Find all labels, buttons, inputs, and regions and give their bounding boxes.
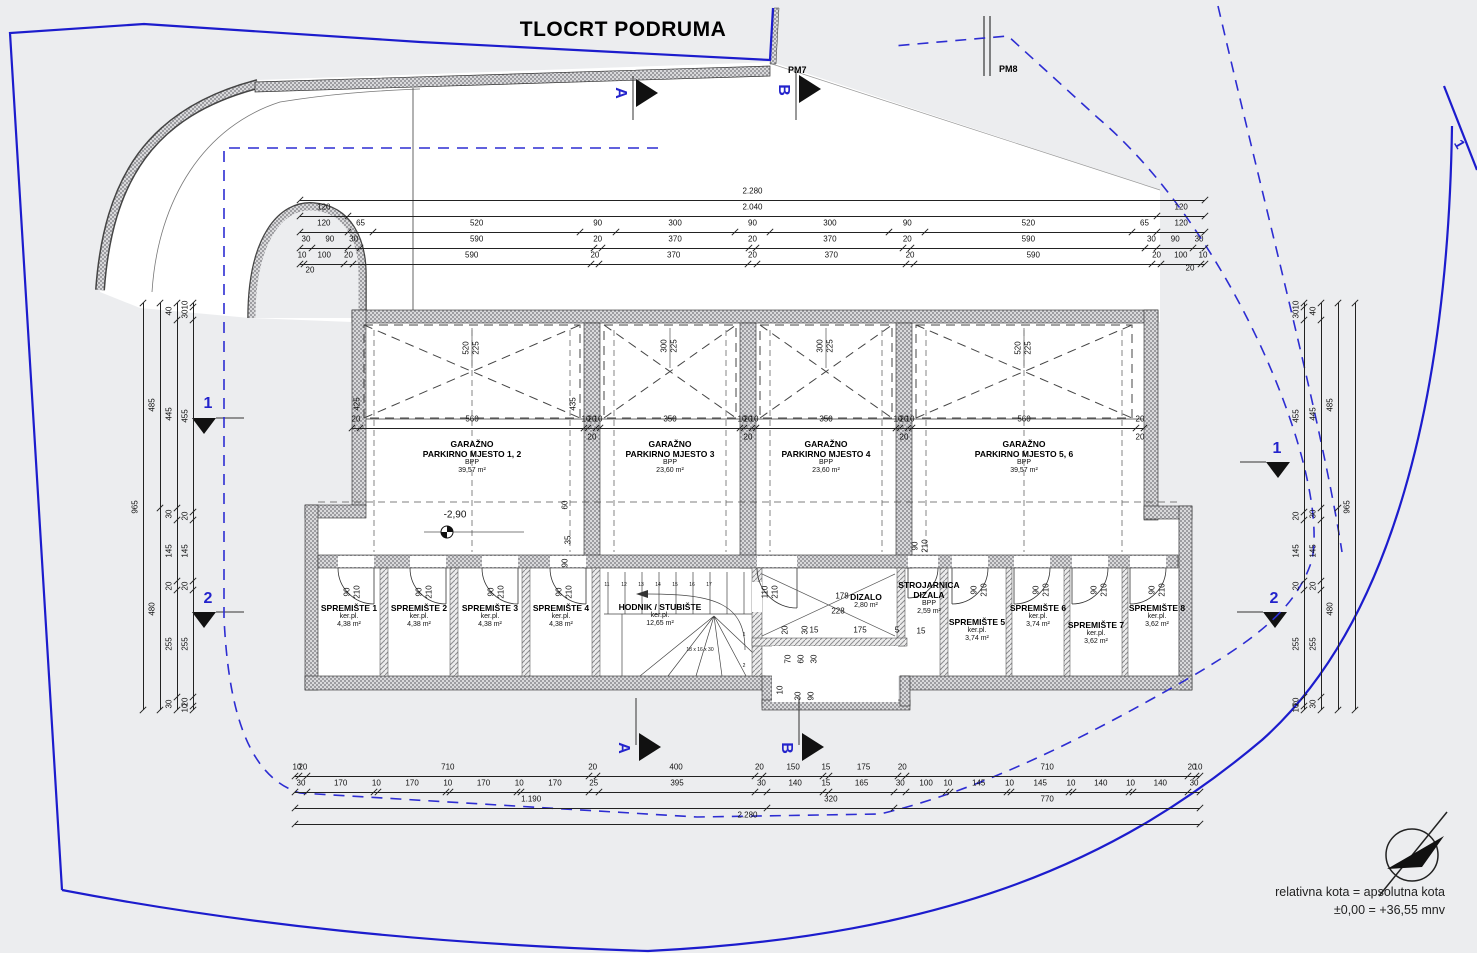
dim-value: 20 — [1136, 416, 1145, 425]
dim-value: 145 — [182, 544, 191, 557]
room-name: SPREMIŠTE 6 — [1010, 603, 1066, 613]
annotation: 20 — [744, 434, 753, 443]
dim-line-bottom-4 — [295, 824, 1200, 825]
dim-value: 485 — [1327, 399, 1336, 412]
room-label-hodnik-stubiste: HODNIK / STUBIŠTEker.pl.12,65 m² — [619, 602, 702, 628]
dim-value: 170 — [334, 780, 347, 789]
dim-value: 560 — [465, 416, 478, 425]
room-sub2: 3,74 m² — [1010, 621, 1066, 629]
dim-value: 90 — [903, 220, 912, 229]
dim-value: 20 — [298, 764, 307, 773]
dim-value: 15 — [821, 780, 830, 789]
dim-value: 40 — [166, 307, 175, 316]
annotation: 70 — [785, 655, 794, 664]
stair-step-number: 17 — [706, 583, 712, 589]
dim-value: 320 — [824, 796, 837, 805]
dim-value: 120 — [1174, 220, 1187, 229]
room-label-spremiste-8: SPREMIŠTE 8ker.pl.3,62 m² — [1129, 603, 1185, 629]
dim-value: 590 — [1027, 252, 1040, 261]
annotation: 90 — [556, 588, 565, 597]
annotation: 425 — [354, 397, 363, 410]
dim-value: 590 — [1022, 236, 1035, 245]
annotation: 90 — [912, 542, 921, 551]
annotation: 225 — [1025, 341, 1034, 354]
room-sub1: ker.pl. — [1129, 613, 1185, 621]
section-letter-B: B — [774, 84, 792, 96]
plot-corner-label: 1 — [1451, 137, 1469, 152]
dim-tick — [1201, 196, 1208, 203]
annotation: 90 — [488, 588, 497, 597]
dim-value: 480 — [1327, 602, 1336, 615]
dim-value: 100 — [318, 252, 331, 261]
room-name: SPREMIŠTE 1 — [321, 603, 377, 613]
dim-value: 255 — [182, 637, 191, 650]
dim-value: 400 — [669, 764, 682, 773]
dim-value: 370 — [667, 252, 680, 261]
dim-value: 10 — [1067, 780, 1076, 789]
dim-value: 10 — [943, 780, 952, 789]
annotation: 90 — [1033, 586, 1042, 595]
dim-value: 30 — [1147, 236, 1156, 245]
dim-value: 480 — [149, 602, 158, 615]
room-sub2: 3,74 m² — [949, 635, 1005, 643]
dim-value: 140 — [788, 780, 801, 789]
dim-value: 90 — [748, 220, 757, 229]
annotation: 60 — [562, 501, 571, 510]
dim-value: 30 — [757, 780, 766, 789]
stair-step-number: 11 — [604, 583, 609, 589]
annotation: 178 — [835, 593, 848, 602]
section-letter-2: 2 — [204, 590, 213, 608]
annotation: 175 — [853, 627, 866, 636]
room-sub1: 2,80 m² — [850, 602, 882, 610]
annotation: 5 — [895, 627, 899, 636]
dim-value: 20 — [344, 252, 353, 261]
dim-tick — [156, 706, 163, 713]
room-label-spremiste-7: SPREMIŠTE 7ker.pl.3,62 m² — [1068, 620, 1124, 646]
section-letter-B: B — [777, 742, 795, 754]
dim-value: 965 — [1344, 500, 1353, 513]
dim-value: 2.280 — [737, 812, 757, 821]
annotation: 90 — [1149, 586, 1158, 595]
stair-note: 18 x 16 x 30 — [686, 648, 713, 654]
annotation: 228 — [831, 608, 844, 617]
dim-value: 150 — [786, 764, 799, 773]
dim-value: 170 — [405, 780, 418, 789]
annotation: 225 — [827, 339, 836, 352]
section-letter-2: 2 — [1270, 590, 1279, 608]
room-name: STROJARNICA DIZALA — [898, 580, 959, 600]
dim-value: 485 — [149, 399, 158, 412]
stair-step-number: 1 — [743, 633, 746, 639]
dim-value: 30 — [1190, 780, 1199, 789]
annotation: 90 — [416, 588, 425, 597]
annotation: 15 — [810, 627, 819, 636]
dim-value: 350 — [819, 416, 832, 425]
stair-step-number: 14 — [655, 583, 661, 589]
room-sub2: 39,57 m² — [975, 467, 1073, 475]
dim-value: 770 — [1040, 796, 1053, 805]
annotation: 210 — [498, 585, 507, 598]
dim-tick — [1351, 706, 1358, 713]
annotation: 520 — [1015, 341, 1024, 354]
dim-value: 370 — [825, 252, 838, 261]
dim-value: 100 — [1174, 252, 1187, 261]
annotation: 210 — [426, 585, 435, 598]
dim-value: 445 — [1310, 407, 1319, 420]
dim-value: 30 — [896, 780, 905, 789]
annotation: 90 — [1091, 586, 1100, 595]
room-sub1: ker.pl. — [619, 612, 702, 620]
stair-step-number: 12 — [621, 583, 627, 589]
dim-value: 710 — [1040, 764, 1053, 773]
dim-value: 350 — [663, 416, 676, 425]
stair-step-number: 16 — [689, 583, 695, 589]
dim-value: 10 — [443, 780, 452, 789]
room-sub1: BPP — [423, 459, 521, 467]
annotation: 210 — [354, 585, 363, 598]
annotation: 210 — [1101, 583, 1110, 596]
dim-tick — [1196, 788, 1203, 795]
annotation: 90 — [808, 692, 817, 701]
room-label-garage-3: GARAŽNO PARKIRNO MJESTO 3BPP23,60 m² — [626, 439, 715, 475]
room-name: SPREMIŠTE 5 — [949, 617, 1005, 627]
dim-tick — [139, 706, 146, 713]
dim-value: 10 — [594, 416, 603, 425]
dim-value: 255 — [1310, 637, 1319, 650]
dim-line-right-4 — [1355, 303, 1356, 710]
annotation: 520 — [463, 341, 472, 354]
room-label-dizalo: DIZALO2,80 m² — [850, 592, 882, 610]
room-sub2: 23,60 m² — [782, 467, 871, 475]
dim-value: 10 — [1126, 780, 1135, 789]
room-sub1: ker.pl. — [462, 613, 518, 621]
dim-value: 90 — [325, 236, 334, 245]
dim-value: 175 — [857, 764, 870, 773]
dim-value: 10 — [298, 252, 307, 261]
dim-value: 120 — [317, 220, 330, 229]
annotation: 210 — [922, 539, 931, 552]
room-name: SPREMIŠTE 2 — [391, 603, 447, 613]
annotation: 300 — [817, 339, 826, 352]
room-sub1: BPP — [975, 459, 1073, 467]
dim-value: 370 — [823, 236, 836, 245]
dim-value: 300 — [668, 220, 681, 229]
dim-value: 590 — [470, 236, 483, 245]
dim-line-bottom-3 — [295, 808, 1200, 809]
dim-value: 710 — [441, 764, 454, 773]
dim-value: 20 — [588, 764, 597, 773]
dim-line-garage-front — [352, 428, 1144, 429]
elevation-note-line2: ±0,00 = +36,55 mnv — [1275, 902, 1445, 920]
dim-value: 965 — [132, 500, 141, 513]
room-sub1: ker.pl. — [1010, 613, 1066, 621]
dim-line-right-1 — [1304, 303, 1305, 710]
room-sub1: BPP — [626, 459, 715, 467]
dim-value: 170 — [548, 780, 561, 789]
dim-value: 20 — [1152, 252, 1161, 261]
room-name: HODNIK / STUBIŠTE — [619, 602, 702, 612]
dim-value: 370 — [668, 236, 681, 245]
dim-value: 590 — [465, 252, 478, 261]
room-sub1: ker.pl. — [391, 613, 447, 621]
dim-value: 10 — [750, 416, 759, 425]
annotation: 225 — [671, 339, 680, 352]
dim-value: 10 — [1194, 764, 1203, 773]
dim-value: 30 — [297, 780, 306, 789]
annotation: 210 — [1159, 583, 1168, 596]
dim-value: 255 — [166, 637, 175, 650]
dim-value: 2.280 — [742, 188, 762, 197]
annotation: 90 — [971, 586, 980, 595]
room-label-spremiste-3: SPREMIŠTE 3ker.pl.4,38 m² — [462, 603, 518, 629]
room-name: SPREMIŠTE 8 — [1129, 603, 1185, 613]
annotation: 435 — [570, 397, 579, 410]
room-sub2: 4,38 m² — [391, 621, 447, 629]
dim-value: 120 — [317, 204, 330, 213]
dim-value: 30 — [1195, 236, 1204, 245]
dim-line-top-3 — [300, 232, 1205, 233]
room-label-strojarnica-dizala: STROJARNICA DIZALABPP2,59 m² — [898, 580, 959, 616]
dim-value: 2.040 — [742, 204, 762, 213]
room-name: SPREMIŠTE 3 — [462, 603, 518, 613]
page-title: TLOCRT PODRUMA — [520, 18, 726, 42]
dim-value: 300 — [823, 220, 836, 229]
annotation: 210 — [1043, 583, 1052, 596]
room-label-spremiste-6: SPREMIŠTE 6ker.pl.3,74 m² — [1010, 603, 1066, 629]
section-letter-1: 1 — [1273, 440, 1282, 458]
dim-value: 20 — [755, 764, 764, 773]
room-label-spremiste-5: SPREMIŠTE 5ker.pl.3,74 m² — [949, 617, 1005, 643]
dim-value: 90 — [593, 220, 602, 229]
dim-value: 170 — [477, 780, 490, 789]
room-sub1: ker.pl. — [1068, 630, 1124, 638]
dim-value: 65 — [356, 220, 365, 229]
dim-value: 20 — [1293, 512, 1302, 521]
room-sub2: 3,62 m² — [1129, 621, 1185, 629]
annotation: 30 — [795, 692, 804, 701]
room-name: DIZALO — [850, 592, 882, 602]
dim-value: 145 — [1293, 544, 1302, 557]
annotation: 20 — [782, 626, 791, 635]
annotation: 210 — [981, 583, 990, 596]
dim-value: 145 — [1034, 780, 1047, 789]
dim-value: 10 — [906, 416, 915, 425]
annotation: 20 — [1186, 265, 1195, 274]
room-sub1: ker.pl. — [321, 613, 377, 621]
annotation: 20 — [900, 434, 909, 443]
pm7-label: PM7 — [788, 65, 807, 75]
dim-tick — [173, 706, 180, 713]
dim-value: 100 — [919, 780, 932, 789]
dim-value: 455 — [182, 409, 191, 422]
dim-value: 520 — [1022, 220, 1035, 229]
dim-value: 25 — [589, 780, 598, 789]
room-label-spremiste-4: SPREMIŠTE 4ker.pl.4,38 m² — [533, 603, 589, 629]
room-label-garage-1-2: GARAŽNO PARKIRNO MJESTO 1, 2BPP39,57 m² — [423, 439, 521, 475]
dim-tick — [1140, 424, 1147, 431]
dim-value: 120 — [1174, 204, 1187, 213]
dim-value: 90 — [1171, 236, 1180, 245]
annotation: -2,90 — [444, 509, 467, 520]
dim-tick — [1334, 706, 1341, 713]
annotation-layer: TLOCRT PODRUMA PM7 PM8 1 relativna kota … — [0, 0, 1477, 953]
room-label-spremiste-2: SPREMIŠTE 2ker.pl.4,38 m² — [391, 603, 447, 629]
dim-value: 140 — [1094, 780, 1107, 789]
room-sub2: 3,62 m² — [1068, 638, 1124, 646]
dim-value: 20 — [182, 512, 191, 521]
dim-tick — [1317, 706, 1324, 713]
dim-line-top-1 — [300, 200, 1205, 201]
annotation: 90 — [344, 588, 353, 597]
dim-line-top-5 — [300, 264, 1205, 265]
dim-value: 20 — [593, 236, 602, 245]
dim-value: 520 — [470, 220, 483, 229]
dim-line-bottom-2 — [295, 792, 1200, 793]
dim-tick — [1196, 804, 1203, 811]
dim-value: 20 — [748, 252, 757, 261]
room-sub2: 4,38 m² — [533, 621, 589, 629]
annotation: 225 — [473, 341, 482, 354]
dim-value: 145 — [166, 544, 175, 557]
dim-value: 40 — [1310, 307, 1319, 316]
room-name: GARAŽNO PARKIRNO MJESTO 4 — [782, 439, 871, 459]
stair-step-number: 2 — [743, 664, 746, 670]
annotation: 60 — [798, 655, 807, 664]
dim-value: 20 — [906, 252, 915, 261]
dim-line-bottom-1 — [295, 776, 1200, 777]
annotation: 210 — [566, 585, 575, 598]
room-sub1: BPP — [898, 600, 959, 608]
room-sub2: 4,38 m² — [462, 621, 518, 629]
section-letter-A: A — [614, 742, 632, 754]
room-sub2: 4,38 m² — [321, 621, 377, 629]
dim-value: 20 — [898, 764, 907, 773]
dim-value: 145 — [1310, 544, 1319, 557]
annotation: 10 — [777, 686, 786, 695]
room-sub1: ker.pl. — [949, 627, 1005, 635]
dim-value: 20 — [903, 236, 912, 245]
dim-value: 1.190 — [521, 796, 541, 805]
section-letter-1: 1 — [204, 395, 213, 413]
room-label-spremiste-1: SPREMIŠTE 1ker.pl.4,38 m² — [321, 603, 377, 629]
annotation: 30 — [811, 655, 820, 664]
room-sub1: BPP — [782, 459, 871, 467]
stair-step-number: 13 — [638, 583, 644, 589]
dim-value: 140 — [1154, 780, 1167, 789]
annotation: 20 — [1136, 434, 1145, 443]
dim-tick — [1196, 820, 1203, 827]
elevation-note-line1: relativna kota = apsolutna kota — [1275, 884, 1445, 902]
dim-value: 445 — [166, 407, 175, 420]
annotation: 300 — [661, 339, 670, 352]
dim-value: 165 — [855, 780, 868, 789]
room-sub2: 2,59 m² — [898, 608, 959, 616]
annotation: 20 — [306, 267, 315, 276]
annotation: 20 — [588, 434, 597, 443]
room-sub2: 23,60 m² — [626, 467, 715, 475]
dim-value: 30 — [302, 236, 311, 245]
annotation: 15 — [917, 628, 926, 637]
room-name: GARAŽNO PARKIRNO MJESTO 5, 6 — [975, 439, 1073, 459]
dim-value: 560 — [1017, 416, 1030, 425]
dim-value: 20 — [748, 236, 757, 245]
dim-tick — [1201, 212, 1208, 219]
dim-value: 20 — [352, 416, 361, 425]
annotation: 35 — [565, 536, 574, 545]
annotation: 90 — [562, 559, 571, 568]
annotation: 210 — [772, 585, 781, 598]
room-sub2: 12,65 m² — [619, 620, 702, 628]
dim-value: 30 — [1310, 699, 1319, 708]
dim-line-left-1 — [143, 303, 144, 710]
section-letter-A: A — [611, 87, 629, 99]
elevation-note: relativna kota = apsolutna kota ±0,00 = … — [1275, 884, 1445, 919]
room-label-garage-5-6: GARAŽNO PARKIRNO MJESTO 5, 6BPP39,57 m² — [975, 439, 1073, 475]
room-name: SPREMIŠTE 7 — [1068, 620, 1124, 630]
dim-value: 65 — [1140, 220, 1149, 229]
dim-value: 395 — [670, 780, 683, 789]
pm8-label: PM8 — [999, 64, 1018, 74]
dim-line-left-4 — [193, 303, 194, 710]
dim-value: 10 — [1199, 252, 1208, 261]
dim-value: 20 — [590, 252, 599, 261]
dim-value: 30 — [166, 699, 175, 708]
dim-value: 255 — [1293, 637, 1302, 650]
room-name: GARAŽNO PARKIRNO MJESTO 1, 2 — [423, 439, 521, 459]
room-name: SPREMIŠTE 4 — [533, 603, 589, 613]
room-name: GARAŽNO PARKIRNO MJESTO 3 — [626, 439, 715, 459]
room-label-garage-4: GARAŽNO PARKIRNO MJESTO 4BPP23,60 m² — [782, 439, 871, 475]
dim-line-top-2 — [300, 216, 1205, 217]
floor-plan-canvas: TLOCRT PODRUMA PM7 PM8 1 relativna kota … — [0, 0, 1477, 953]
room-sub2: 39,57 m² — [423, 467, 521, 475]
room-sub1: ker.pl. — [533, 613, 589, 621]
dim-value: 145 — [972, 780, 985, 789]
dim-value: 15 — [821, 764, 830, 773]
dim-value: 455 — [1293, 409, 1302, 422]
stair-step-number: 15 — [672, 583, 678, 589]
annotation: 110 — [762, 586, 771, 599]
annotation: 30 — [802, 626, 811, 635]
